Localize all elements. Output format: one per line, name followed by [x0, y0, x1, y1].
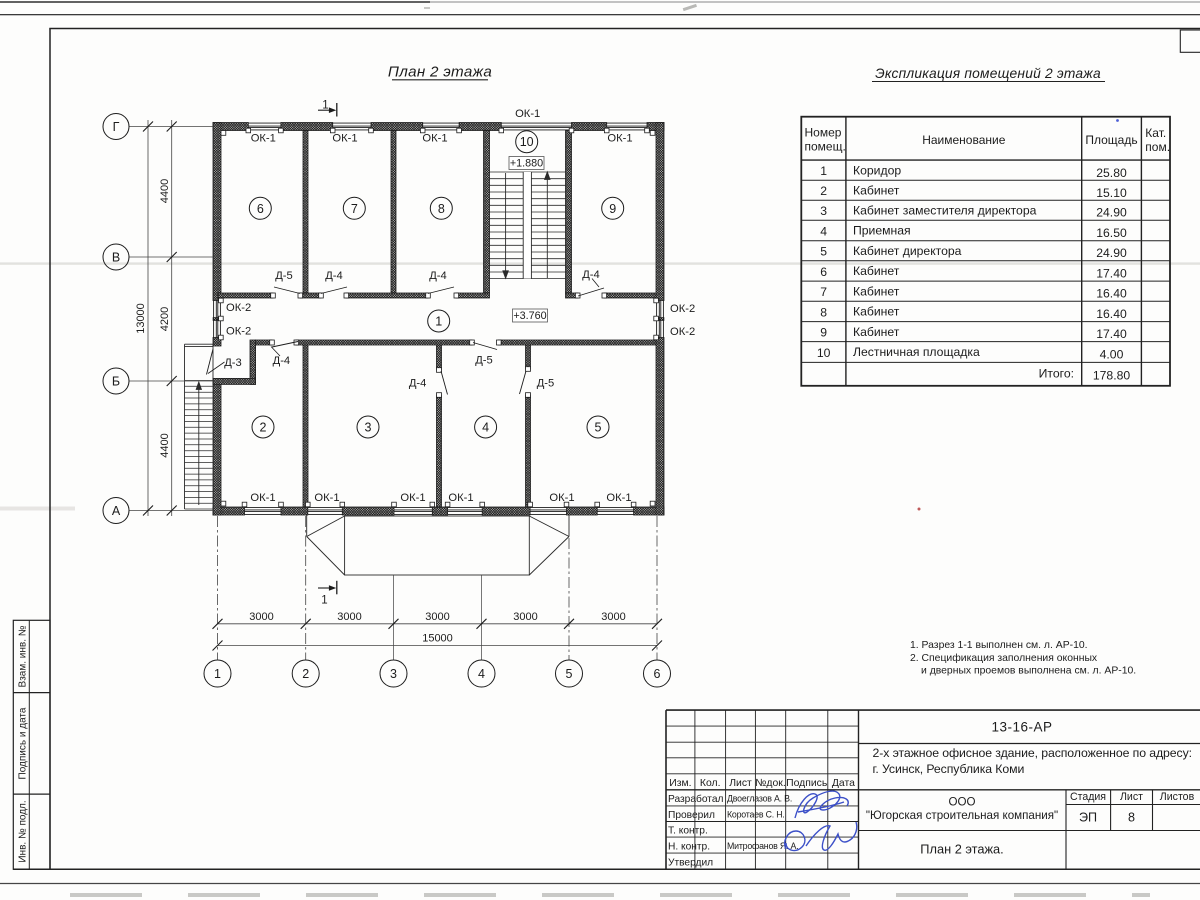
svg-text:5: 5	[566, 667, 573, 681]
svg-text:17.40: 17.40	[1096, 327, 1127, 341]
svg-text:6: 6	[257, 202, 264, 216]
svg-text:ОК-1: ОК-1	[607, 133, 632, 145]
svg-text:Номер: Номер	[805, 126, 842, 140]
svg-text:5: 5	[820, 245, 827, 259]
svg-text:Разработал: Разработал	[668, 793, 724, 805]
svg-text:Листов: Листов	[1160, 791, 1195, 803]
svg-text:Экспликация помещений 2 этажа: Экспликация помещений 2 этажа	[875, 66, 1101, 81]
svg-text:Коротаев С. Н.: Коротаев С. Н.	[727, 810, 785, 820]
svg-text:4: 4	[820, 224, 827, 238]
svg-text:Г: Г	[113, 120, 120, 134]
svg-text:План 2 этажа.: План 2 этажа.	[920, 842, 1003, 857]
svg-text:Лестничная площадка: Лестничная площадка	[853, 345, 980, 359]
svg-text:6: 6	[820, 265, 827, 279]
svg-text:4400: 4400	[159, 433, 171, 457]
svg-text:Инв. № подл.: Инв. № подл.	[18, 800, 29, 862]
svg-text:3: 3	[365, 421, 372, 435]
svg-text:помещ.: помещ.	[805, 140, 846, 154]
svg-text:"Югорская строительная компани: "Югорская строительная компания"	[866, 809, 1058, 822]
svg-text:Д-4: Д-4	[409, 378, 427, 390]
svg-text:План 2 этажа: План 2 этажа	[388, 64, 492, 81]
svg-text:7: 7	[820, 285, 827, 299]
svg-text:Лист: Лист	[1120, 791, 1143, 803]
svg-text:Взам. инв. №: Взам. инв. №	[18, 625, 29, 687]
svg-text:3: 3	[390, 667, 397, 681]
svg-text:Наименование: Наименование	[922, 133, 1006, 147]
svg-text:Д-3: Д-3	[224, 357, 242, 369]
svg-text:Д-4: Д-4	[273, 355, 291, 367]
svg-text:пом.: пом.	[1145, 140, 1170, 154]
svg-text:13000: 13000	[135, 303, 147, 334]
svg-text:3000: 3000	[601, 611, 625, 623]
svg-text:2: 2	[260, 421, 267, 435]
svg-text:Кабинет заместителя директора: Кабинет заместителя директора	[853, 204, 1037, 218]
svg-text:Кабинет директора: Кабинет директора	[853, 244, 962, 258]
svg-text:ОК-1: ОК-1	[448, 492, 473, 504]
svg-text:Н. контр.: Н. контр.	[668, 842, 710, 853]
svg-text:13-16-АР: 13-16-АР	[991, 720, 1052, 735]
svg-text:ОК-1: ОК-1	[422, 133, 447, 145]
svg-text:2. Спецификация заполнения око: 2. Спецификация заполнения оконных	[910, 652, 1098, 664]
svg-text:1: 1	[820, 164, 827, 178]
svg-text:1: 1	[435, 315, 442, 329]
svg-text:ООО: ООО	[948, 796, 975, 809]
svg-text:9: 9	[820, 326, 827, 340]
svg-text:Д-4: Д-4	[582, 269, 600, 281]
svg-text:3000: 3000	[249, 611, 273, 623]
svg-text:16.40: 16.40	[1096, 287, 1127, 301]
svg-text:ОК-1: ОК-1	[332, 133, 357, 145]
svg-text:ОК-1: ОК-1	[251, 133, 276, 145]
svg-text:10: 10	[817, 346, 831, 360]
svg-text:7: 7	[351, 202, 358, 216]
svg-text:Митрофанов Я. А.: Митрофанов Я. А.	[727, 841, 798, 851]
svg-text:1: 1	[322, 99, 328, 111]
svg-text:2-х этажное офисное здание, ра: 2-х этажное офисное здание, расположенно…	[873, 746, 1192, 760]
svg-text:1: 1	[321, 595, 327, 607]
svg-text:Изм.: Изм.	[669, 778, 691, 789]
svg-text:Кабинет: Кабинет	[853, 325, 900, 339]
svg-text:Кабинет: Кабинет	[853, 305, 900, 319]
svg-text:Дата: Дата	[832, 778, 855, 789]
svg-text:3000: 3000	[513, 611, 537, 623]
svg-text:+1.880: +1.880	[510, 158, 543, 170]
svg-text:1. Разрез 1-1 выполнен см. л.: 1. Разрез 1-1 выполнен см. л. АР-10.	[910, 640, 1088, 651]
svg-text:4.00: 4.00	[1100, 348, 1124, 362]
svg-text:8: 8	[820, 305, 827, 319]
svg-text:2: 2	[820, 184, 827, 198]
svg-text:Б: Б	[112, 375, 120, 389]
svg-text:8: 8	[1128, 811, 1135, 825]
svg-text:Приемная: Приемная	[853, 224, 911, 238]
svg-text:Д-5: Д-5	[475, 355, 493, 367]
svg-text:6: 6	[654, 667, 661, 681]
svg-text:3000: 3000	[337, 611, 361, 623]
svg-text:4: 4	[482, 421, 489, 435]
svg-text:ЭП: ЭП	[1079, 811, 1097, 825]
svg-text:Подпись и дата: Подпись и дата	[18, 707, 29, 779]
svg-text:и дверных проемов выполнена см: и дверных проемов выполнена см. л. АР-10…	[921, 666, 1136, 677]
svg-text:24.90: 24.90	[1096, 206, 1127, 220]
svg-text:ОК-2: ОК-2	[226, 326, 251, 338]
svg-text:В: В	[112, 251, 120, 265]
svg-text:16.50: 16.50	[1096, 226, 1127, 240]
svg-text:ОК-1: ОК-1	[400, 492, 425, 504]
svg-text:г. Усинск, Республика Коми: г. Усинск, Республика Коми	[873, 762, 1025, 776]
svg-text:ОК-1: ОК-1	[314, 492, 339, 504]
svg-text:24.90: 24.90	[1096, 246, 1127, 260]
svg-text:5: 5	[595, 421, 602, 435]
svg-text:ОК-1: ОК-1	[606, 492, 631, 504]
svg-text:Т. контр.: Т. контр.	[668, 826, 708, 837]
svg-text:Площадь: Площадь	[1085, 133, 1137, 147]
svg-text:ОК-2: ОК-2	[226, 302, 251, 314]
svg-text:178.80: 178.80	[1093, 369, 1130, 383]
svg-text:ОК-1: ОК-1	[515, 108, 540, 120]
svg-text:8: 8	[438, 202, 445, 216]
svg-text:Кабинет: Кабинет	[853, 264, 900, 278]
svg-text:Кабинет: Кабинет	[853, 183, 900, 197]
svg-text:10: 10	[520, 135, 534, 149]
svg-text:9: 9	[609, 202, 616, 216]
svg-text:15.10: 15.10	[1096, 186, 1127, 200]
svg-text:№док.: №док.	[755, 778, 785, 789]
svg-text:15000: 15000	[422, 633, 453, 645]
svg-text:Д-4: Д-4	[429, 270, 447, 282]
svg-text:Подпись: Подпись	[786, 778, 827, 789]
svg-text:Коридор: Коридор	[853, 163, 901, 177]
svg-text:Утвердил: Утвердил	[668, 858, 713, 869]
svg-text:Д-5: Д-5	[275, 270, 293, 282]
svg-text:Двоеглазов А. В.: Двоеглазов А. В.	[727, 794, 792, 804]
svg-text:ОК-2: ОК-2	[670, 303, 695, 315]
svg-text:ОК-1: ОК-1	[549, 492, 574, 504]
svg-text:3: 3	[820, 204, 827, 218]
svg-text:17.40: 17.40	[1096, 267, 1127, 281]
svg-text:ОК-1: ОК-1	[250, 492, 275, 504]
svg-text:Кат.: Кат.	[1145, 126, 1166, 140]
svg-text:Проверил: Проверил	[668, 810, 715, 821]
svg-text:4200: 4200	[159, 307, 171, 331]
svg-text:1: 1	[214, 667, 221, 681]
svg-text:Лист: Лист	[729, 778, 752, 789]
svg-text:ОК-2: ОК-2	[670, 326, 695, 338]
svg-text:+3.760: +3.760	[513, 310, 546, 322]
svg-text:Д-5: Д-5	[537, 378, 555, 390]
svg-text:А: А	[112, 504, 121, 518]
svg-text:Итого:: Итого:	[1039, 367, 1074, 381]
svg-text:Д-4: Д-4	[325, 270, 343, 282]
svg-text:25.80: 25.80	[1096, 166, 1127, 180]
svg-text:2: 2	[302, 667, 309, 681]
svg-text:Кабинет: Кабинет	[853, 284, 900, 298]
svg-text:4400: 4400	[159, 179, 171, 203]
svg-text:4: 4	[478, 667, 485, 681]
svg-text:Стадия: Стадия	[1070, 791, 1106, 803]
svg-text:Кол.: Кол.	[700, 778, 721, 789]
svg-text:16.40: 16.40	[1096, 307, 1127, 321]
svg-text:3000: 3000	[425, 611, 449, 623]
